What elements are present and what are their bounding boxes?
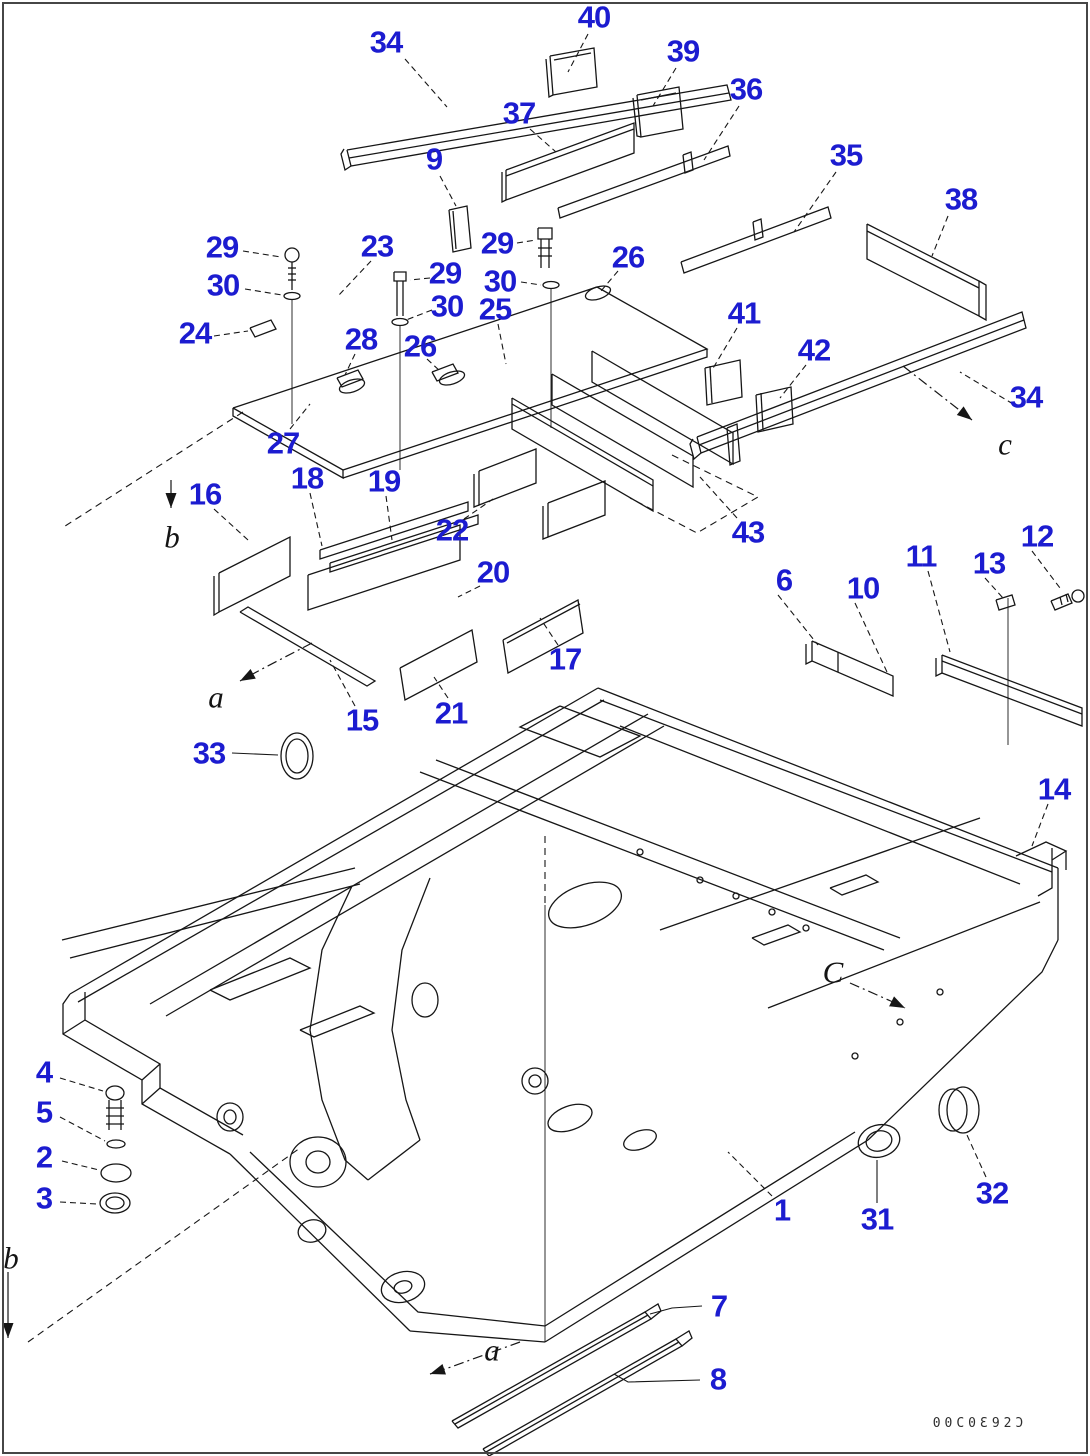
callout-33: 33 [193, 738, 225, 769]
callout-6: 6 [776, 565, 792, 596]
callout-35: 35 [830, 140, 862, 171]
callout-32: 32 [976, 1178, 1008, 1209]
callout-22: 22 [436, 515, 468, 546]
view-letter-C: C [823, 957, 844, 988]
view-letter-b: b [3, 1243, 19, 1274]
callout-21: 21 [435, 698, 467, 729]
callout-41: 41 [728, 298, 760, 329]
callout-3: 3 [36, 1183, 52, 1214]
callout-38: 38 [945, 184, 977, 215]
callout-25: 25 [479, 294, 511, 325]
callout-24: 24 [179, 318, 211, 349]
callout-34: 34 [1010, 382, 1042, 413]
callout-26: 26 [404, 331, 436, 362]
view-letter-b: b [164, 522, 180, 553]
callout-9: 9 [426, 144, 442, 175]
callout-15: 15 [346, 705, 378, 736]
callout-34: 34 [370, 27, 402, 58]
callout-19: 19 [368, 466, 400, 497]
callout-20: 20 [477, 557, 509, 588]
callout-42: 42 [798, 335, 830, 366]
callout-31: 31 [861, 1204, 893, 1235]
diagram-canvas [0, 0, 1090, 1456]
callout-1: 1 [774, 1195, 790, 1226]
callout-2: 2 [36, 1142, 52, 1173]
view-letter-a: a [484, 1335, 500, 1366]
callout-43: 43 [732, 517, 764, 548]
callout-26: 26 [612, 242, 644, 273]
drawing-code: 00C0Ɛ92Ɔ [880, 1416, 1080, 1431]
callout-30: 30 [431, 291, 463, 322]
callout-4: 4 [36, 1057, 52, 1088]
callout-5: 5 [36, 1097, 52, 1128]
callout-11: 11 [906, 541, 937, 572]
callout-13: 13 [973, 548, 1005, 579]
callout-7: 7 [711, 1291, 727, 1322]
callout-14: 14 [1038, 774, 1070, 805]
callout-16: 16 [189, 479, 221, 510]
callout-17: 17 [549, 644, 581, 675]
callout-27: 27 [267, 428, 299, 459]
callout-29: 29 [481, 228, 513, 259]
view-letter-a: a [208, 682, 224, 713]
callout-40: 40 [578, 2, 610, 33]
callout-28: 28 [345, 324, 377, 355]
callout-30: 30 [207, 270, 239, 301]
view-direction-arrows [3, 366, 973, 1374]
callout-39: 39 [667, 36, 699, 67]
callout-37: 37 [503, 98, 535, 129]
callout-18: 18 [291, 463, 323, 494]
callout-23: 23 [361, 231, 393, 262]
view-letter-c: c [998, 429, 1012, 460]
callout-10: 10 [847, 573, 879, 604]
callout-8: 8 [710, 1364, 726, 1395]
parts-diagram-page: 3440393637935382930242329302930252628262… [0, 0, 1090, 1456]
callout-29: 29 [206, 232, 238, 263]
machine-line-drawing [28, 48, 1084, 1456]
callout-12: 12 [1021, 521, 1053, 552]
callout-29: 29 [429, 258, 461, 289]
callout-36: 36 [730, 74, 762, 105]
